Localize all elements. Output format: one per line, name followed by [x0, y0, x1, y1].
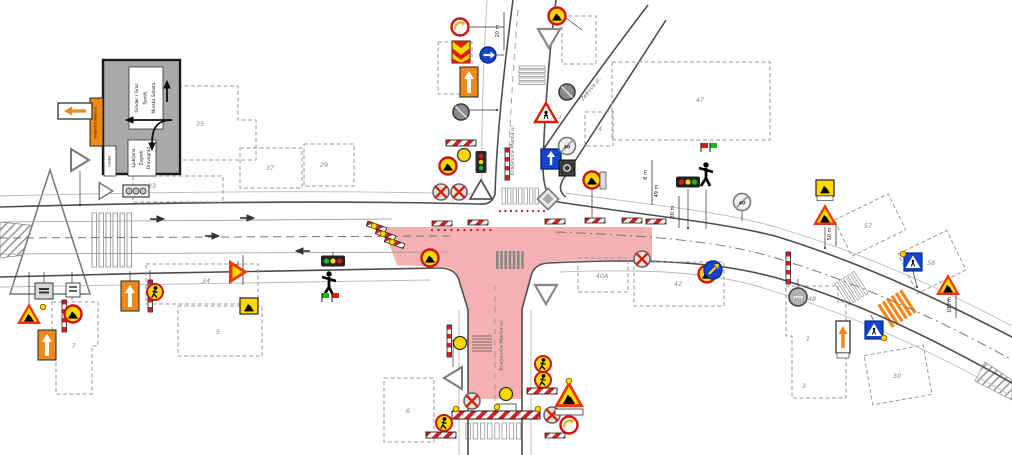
building-number: 57 [864, 222, 873, 230]
sign-plate [817, 196, 833, 201]
flagger-silhouette [699, 162, 713, 186]
stop-label: STOP [793, 296, 804, 300]
hatched-island-southeast [975, 362, 1012, 400]
yield-sign [71, 149, 89, 171]
cancelled-sign [634, 251, 650, 267]
dimension-label: 49 m [654, 184, 660, 197]
barrier-board [426, 432, 456, 438]
dimension-label: 30 m [670, 205, 676, 218]
pedestrian-crossing-south [466, 423, 521, 439]
no-stopping-sign [559, 84, 575, 100]
roadworks-triangle-sign [17, 303, 41, 324]
flagger-silhouette [322, 271, 336, 295]
barrier-board [545, 219, 565, 224]
street-label-closed-south: Kraljeviča Marka ul. [498, 320, 505, 371]
board-line: Zagreb [139, 150, 144, 165]
building-number: 7 [72, 342, 77, 350]
building-number: 37 [266, 164, 275, 172]
board-line: Dravograd [146, 147, 151, 169]
warning-lamp [494, 404, 500, 410]
info-panel-sign [66, 283, 80, 297]
sidewalk-line [0, 192, 478, 196]
pedestrian-crossing-north [519, 66, 545, 85]
roadworks-triangle-sign [813, 204, 837, 225]
board-line: Ljubljana [131, 148, 136, 167]
red-flag [701, 143, 708, 152]
barrier-board [646, 219, 666, 224]
road-edge-south-right-east-bottom [522, 261, 1012, 455]
barrier-board [432, 221, 452, 226]
building-number: 47 [696, 96, 705, 104]
yield-sign [538, 29, 560, 48]
building-number: 34 [202, 277, 210, 285]
barrier-board [527, 388, 557, 394]
building-number: 29 [320, 161, 328, 169]
detour-lens-sign [58, 103, 92, 119]
board-line: Murska Sobota [151, 82, 156, 114]
sign-ref-number: 2 [558, 115, 561, 121]
traffic-closure-plan: 35 37 29 33 34 7 5 6 24 47 40A 42 57 58 … [0, 0, 1012, 455]
barrier-board [545, 433, 565, 438]
speed-value: 40 [739, 201, 745, 207]
speed-value: 40 [564, 145, 570, 151]
plan-drawing: 35 37 29 33 34 7 5 6 24 47 40A 42 57 58 … [0, 0, 1012, 455]
building-number: 42 [674, 280, 682, 288]
traffic-signal-symbol [123, 185, 149, 197]
barrier-board [446, 140, 476, 146]
portable-traffic-light [321, 256, 345, 267]
yield-sign [535, 285, 557, 304]
street-label-side: Zelkova ul. [579, 76, 602, 103]
priority-road-sign [537, 188, 558, 209]
roadworks-circle-sign [549, 8, 566, 25]
board-tab-label: Center [108, 155, 112, 167]
cancelled-sign [464, 393, 480, 409]
roadworks-circle-sign [584, 172, 601, 189]
detour-arrow-panel [121, 281, 139, 311]
building-number: 5 [216, 328, 220, 336]
flashing-lamp [500, 388, 513, 401]
board-line: Šentilj [143, 91, 148, 104]
warning-lamp [566, 378, 572, 384]
barrier-board [468, 220, 488, 225]
pedestrian-crossing-sign [865, 321, 883, 339]
pedestrian-warning-sign [535, 103, 557, 122]
pedestrian-works-sign [535, 372, 551, 388]
detour-arrow-panel [460, 67, 478, 97]
building-number: 40A [596, 272, 609, 280]
building-number: 58 [927, 259, 935, 267]
cancelled-sign [433, 184, 449, 200]
street-label-closed-north: Kraljeviča Marka ul. [509, 125, 516, 176]
warning-lamp [40, 304, 46, 310]
excavator-works-sign [240, 298, 258, 314]
pedestrian-works-sign [535, 356, 551, 372]
barrier-board [622, 218, 642, 223]
detour-roundel-sign [561, 417, 578, 434]
board-line: Gradec / Graz [134, 83, 139, 113]
dimension-label: 20 m [495, 24, 501, 37]
mandatory-direction-sign [480, 47, 496, 63]
direction-sign-board: Gradec / Graz Šentilj Murska Sobota Ljub… [90, 60, 180, 176]
warning-lamp [535, 406, 541, 412]
pedestrian-crossing-north-mouth [502, 188, 538, 204]
barrier-post [786, 252, 791, 284]
building-number: 1 [806, 335, 810, 343]
barrier-board [585, 218, 605, 223]
flashing-lamp [454, 337, 467, 350]
sign-back-panel [559, 160, 575, 176]
green-flag [322, 293, 329, 302]
info-panel-sign [35, 283, 53, 299]
red-flag [332, 293, 339, 302]
roadworks-circle-sign [440, 158, 457, 175]
flashing-lamp [458, 149, 471, 162]
roadworks-triangle-sign [554, 381, 584, 407]
building-number: 48 [808, 295, 816, 303]
building-number: 24 [594, 125, 602, 133]
warning-lamp [371, 223, 377, 229]
portable-traffic-light [476, 151, 487, 173]
portable-sign-stand [470, 180, 492, 199]
yield-sign [444, 367, 462, 389]
barrier-post [505, 148, 510, 180]
warning-lamp [389, 239, 395, 245]
building-number: 35 [196, 120, 204, 128]
portable-traffic-light [676, 177, 700, 188]
warning-lamp [881, 335, 887, 341]
road-edge-diagonal-se [560, 20, 666, 197]
cancelled-sign [451, 184, 467, 200]
yield-sign [99, 183, 113, 200]
pedestrian-works-sign [147, 284, 163, 300]
detour-roundel-sign [452, 19, 469, 36]
warning-lamp [380, 231, 386, 237]
detour-arrow-panel [38, 330, 56, 360]
warning-lamp [900, 251, 906, 257]
building-number: 3 [802, 382, 806, 390]
no-stopping-sign [453, 104, 469, 120]
building-number: 6 [406, 407, 410, 415]
green-flag [710, 143, 717, 152]
dimension-label: 8 m [643, 170, 649, 180]
closure-chevron-board [452, 41, 470, 63]
sign-panel [600, 172, 606, 189]
dimension-label: 50 m [827, 227, 833, 240]
keep-right-sign [704, 261, 722, 279]
warning-lamp [453, 406, 459, 412]
roadworks-circle-sign [65, 306, 82, 323]
pedestrian-crossing-sign [904, 253, 922, 271]
pedestrian-works-sign [436, 415, 452, 431]
one-way-sign [541, 149, 561, 169]
barrier-post [447, 325, 452, 357]
road-narrows-sign [816, 180, 834, 196]
sign-plate [555, 409, 583, 415]
sign-plate [837, 353, 849, 358]
roadworks-circle-sign [422, 250, 439, 267]
detour-lens-sign [836, 321, 850, 353]
street-plate-label: Kraljeviča Marka ul. [94, 106, 98, 138]
roadworks-triangle-sign [936, 274, 960, 295]
building-number: 30 [893, 372, 901, 380]
full-closure-barrier [452, 411, 540, 419]
